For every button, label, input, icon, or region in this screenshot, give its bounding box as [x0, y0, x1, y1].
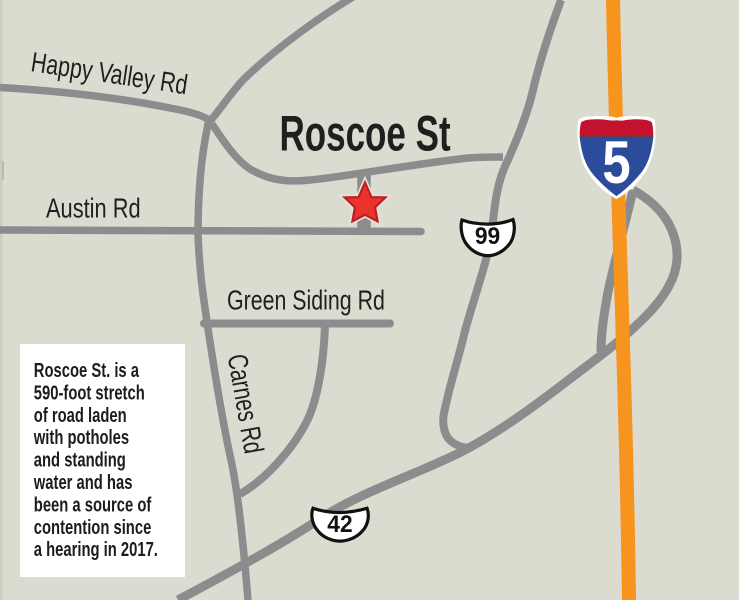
svg-text:with potholes: with potholes	[33, 426, 129, 449]
svg-text:been a source of: been a source of	[34, 493, 152, 516]
svg-text:water and has: water and has	[33, 471, 133, 494]
svg-text:Green Siding Rd: Green Siding Rd	[227, 285, 385, 316]
svg-text:Roscoe St: Roscoe St	[280, 107, 451, 163]
svg-text:Austin Rd: Austin Rd	[46, 193, 141, 224]
svg-text:99: 99	[475, 222, 500, 249]
svg-text:5: 5	[602, 128, 630, 196]
svg-text:and standing: and standing	[34, 448, 126, 471]
svg-text:590-foot stretch: 590-foot stretch	[34, 381, 145, 404]
svg-text:a hearing in 2017.: a hearing in 2017.	[34, 538, 158, 561]
svg-text:42: 42	[327, 510, 352, 537]
svg-text:of road laden: of road laden	[34, 404, 127, 427]
svg-text:contention since: contention since	[34, 516, 152, 539]
svg-text:Roscoe St. is a: Roscoe St. is a	[34, 359, 139, 382]
